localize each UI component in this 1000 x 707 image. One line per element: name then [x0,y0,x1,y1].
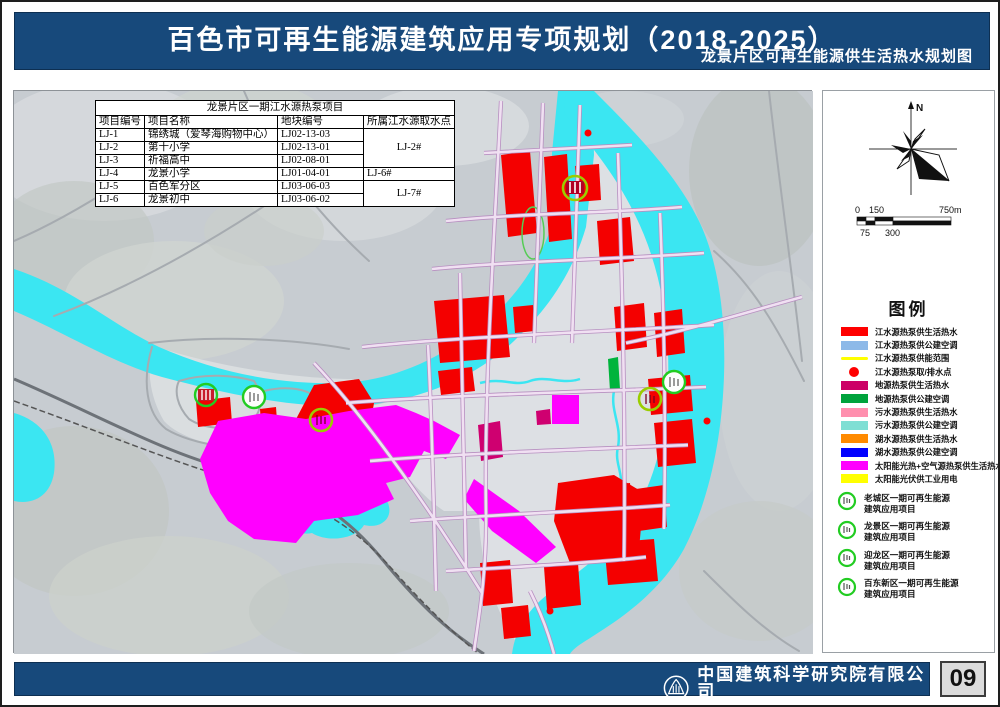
legend-project-item: 老城区一期可再生能源建筑应用项目 [837,491,993,516]
legend-items: 江水源热泵供生活热水江水源热泵供公建空调江水源热泵供能范围江水源热泵取/排水点地… [841,325,991,486]
intake-point-cell: LJ-2# [364,129,455,168]
legend-label: 地源热泵供生活热水 [875,379,949,391]
scale-bar: 0 150 750m 75 300 [847,203,972,245]
legend-swatch-dot-icon [849,367,859,377]
legend-item: 污水源热泵供生活热水 [841,405,991,418]
intake-point-cell: LJ-7# [364,181,455,207]
legend-label: 污水源热泵供生活热水 [875,406,958,418]
project-marker-icon [837,491,859,516]
table-row: LJ-5 百色军分区 LJ03-06-03 LJ-7# [96,181,455,194]
rose-blades [891,129,949,181]
legend-label: 太阳能光伏供工业用电 [875,473,958,485]
legend-projects: 老城区一期可再生能源建筑应用项目龙景区一期可再生能源建筑应用项目迎龙区一期可再生… [837,491,993,605]
legend-item: 地源热泵供生活热水 [841,379,991,392]
legend-label: 江水源热泵供生活热水 [875,326,958,338]
project-label: 迎龙区一期可再生能源建筑应用项目 [864,550,950,572]
company-name-cn: 中国建筑科学研究院有限公司 [697,666,929,700]
map-area: 龙景片区一期江水源热泵项目 项目编号 项目名称 地块编号 所属江水源取水点 LJ… [13,90,812,653]
project-label: 百东新区一期可再生能源建筑应用项目 [864,578,959,600]
legend-item: 湖水源热泵供公建空调 [841,446,991,459]
legend-item: 地源热泵供公建空调 [841,392,991,405]
compass-rose: N [861,99,961,199]
project-table: 龙景片区一期江水源热泵项目 项目编号 项目名称 地块编号 所属江水源取水点 LJ… [95,100,455,207]
legend-item: 湖水源热泵供生活热水 [841,432,991,445]
legend-label: 太阳能光热+空气源热泵供生活热水 [875,460,1000,472]
legend-label: 江水源热泵取/排水点 [875,366,952,378]
project-marker-icon [837,520,859,545]
svg-text:0: 0 [855,205,860,215]
legend-swatch-rect-icon [841,434,868,443]
side-panel: N 0 150 750m [822,90,995,653]
legend-swatch-rect-icon [841,341,868,350]
svg-text:750m: 750m [939,205,962,215]
legend-swatch-rect-icon [841,327,868,336]
legend-label: 湖水源热泵供生活热水 [875,433,958,445]
legend-swatch-line-icon [841,357,868,360]
page-number: 09 [940,661,986,697]
legend-item: 江水源热泵取/排水点 [841,365,991,378]
svg-text:300: 300 [885,228,900,238]
legend-swatch-rect-icon [841,461,868,470]
legend-item: 污水源热泵供公建空调 [841,419,991,432]
col-header: 地块编号 [278,116,364,129]
svg-text:75: 75 [860,228,870,238]
legend-swatch-rect-icon [841,381,868,390]
company-name-en: China Academy of Building Research [697,700,929,707]
footer-band: 中国建筑科学研究院有限公司 China Academy of Building … [14,662,930,696]
project-label: 老城区一期可再生能源建筑应用项目 [864,493,950,515]
legend-item: 太阳能光伏供工业用电 [841,472,991,485]
header-band: 百色市可再生能源建筑应用专项规划（2018-2025） 龙景片区可再生能源供生活… [14,12,990,70]
north-arrow-icon [908,101,914,109]
legend-project-item: 百东新区一期可再生能源建筑应用项目 [837,577,993,602]
legend-item: 江水源热泵供生活热水 [841,325,991,338]
col-header: 所属江水源取水点 [364,116,455,129]
project-marker-icon [837,548,859,573]
legend-label: 污水源热泵供公建空调 [875,420,958,432]
table-row: LJ-4 龙景小学 LJ01-04-01 LJ-6# [96,168,455,181]
north-label: N [916,103,923,114]
col-header: 项目名称 [145,116,278,129]
cabr-logo-icon [663,674,689,702]
legend-item: 江水源热泵供公建空调 [841,338,991,351]
legend-item: 江水源热泵供能范围 [841,352,991,365]
page-subtitle: 龙景片区可再生能源供生活热水规划图 [701,45,973,66]
legend-swatch-rect-icon [841,408,868,417]
legend-label: 湖水源热泵供公建空调 [875,446,958,458]
legend-swatch-rect-icon [841,394,868,403]
legend-label: 江水源热泵供能范围 [875,353,949,365]
legend-label: 地源热泵供公建空调 [875,393,949,405]
project-marker-east-1 [663,371,685,393]
legend-swatch-rect-icon [841,448,868,457]
legend-title: 图例 [823,295,994,320]
legend-label: 江水源热泵供公建空调 [875,339,958,351]
legend-swatch-rect-icon [841,474,868,483]
legend-project-item: 龙景区一期可再生能源建筑应用项目 [837,520,993,545]
plan-sheet: 百色市可再生能源建筑应用专项规划（2018-2025） 龙景片区可再生能源供生活… [0,0,1000,707]
project-marker-west-2 [243,386,265,408]
project-marker-icon [837,577,859,602]
project-label: 龙景区一期可再生能源建筑应用项目 [864,521,950,543]
col-header: 项目编号 [96,116,145,129]
legend-item: 太阳能光热+空气源热泵供生活热水 [841,459,991,472]
legend-project-item: 迎龙区一期可再生能源建筑应用项目 [837,548,993,573]
legend-swatch-rect-icon [841,421,868,430]
intake-point-cell: LJ-6# [364,168,455,181]
table-row: LJ-1 锦绣城（爱琴海购物中心） LJ02-13-03 LJ-2# [96,129,455,142]
table-title: 龙景片区一期江水源热泵项目 [96,101,455,116]
svg-text:150: 150 [869,205,884,215]
